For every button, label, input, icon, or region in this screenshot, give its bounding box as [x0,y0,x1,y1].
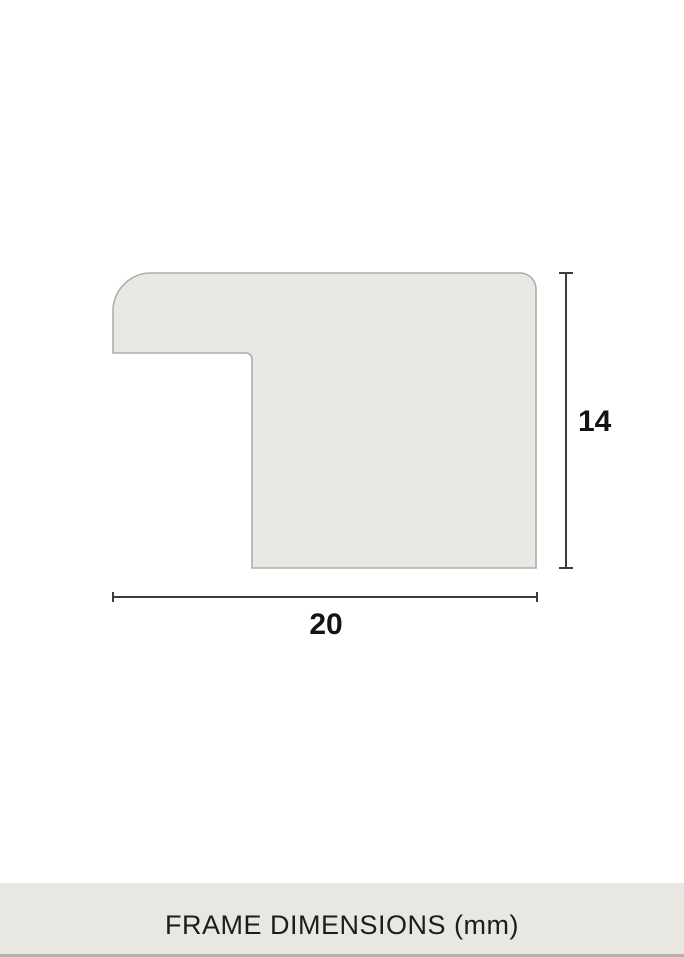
frame-dimensions-page: 14 20 FRAME DIMENSIONS (mm) [0,0,684,957]
width-dimension-line [113,592,537,602]
frame-profile-diagram: 14 20 [0,0,684,957]
frame-profile-shape [113,273,536,568]
height-dimension-label: 14 [578,405,612,438]
height-dimension-line [559,273,573,568]
width-dimension-label: 20 [309,608,342,641]
caption-bar: FRAME DIMENSIONS (mm) [0,883,684,957]
caption-text: FRAME DIMENSIONS (mm) [165,910,519,941]
